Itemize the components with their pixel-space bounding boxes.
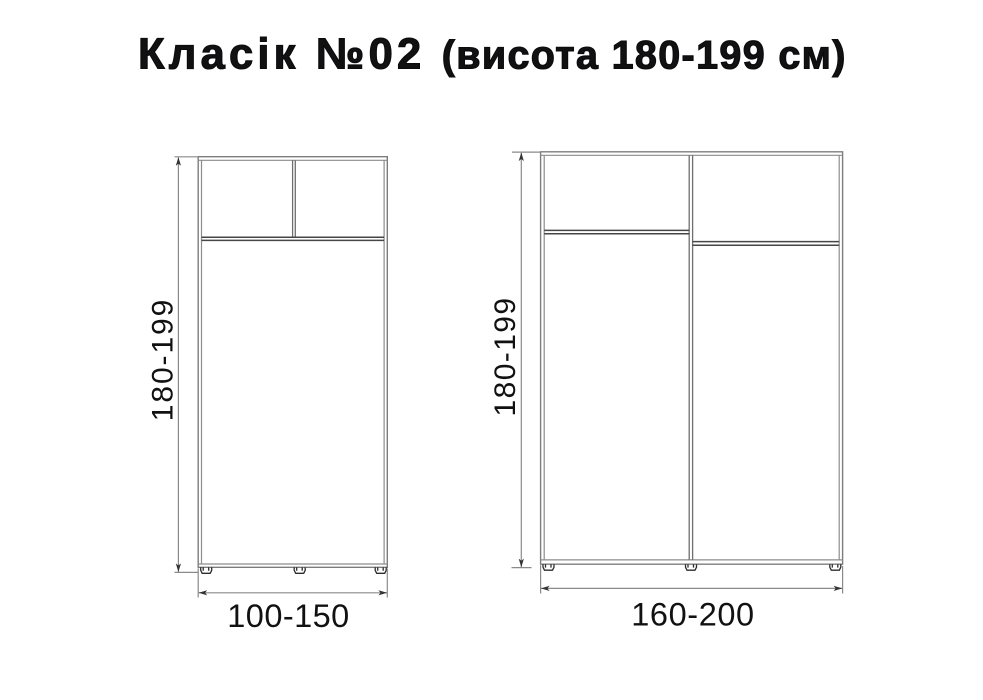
svg-text:180-199: 180-199 <box>147 298 180 421</box>
svg-text:100-150: 100-150 <box>227 598 349 634</box>
svg-text:180-199: 180-199 <box>489 297 522 417</box>
svg-text:160-200: 160-200 <box>631 597 754 633</box>
svg-text:Класік №02 (висота 180-199 см): Класік №02 (висота 180-199 см) <box>138 31 847 79</box>
